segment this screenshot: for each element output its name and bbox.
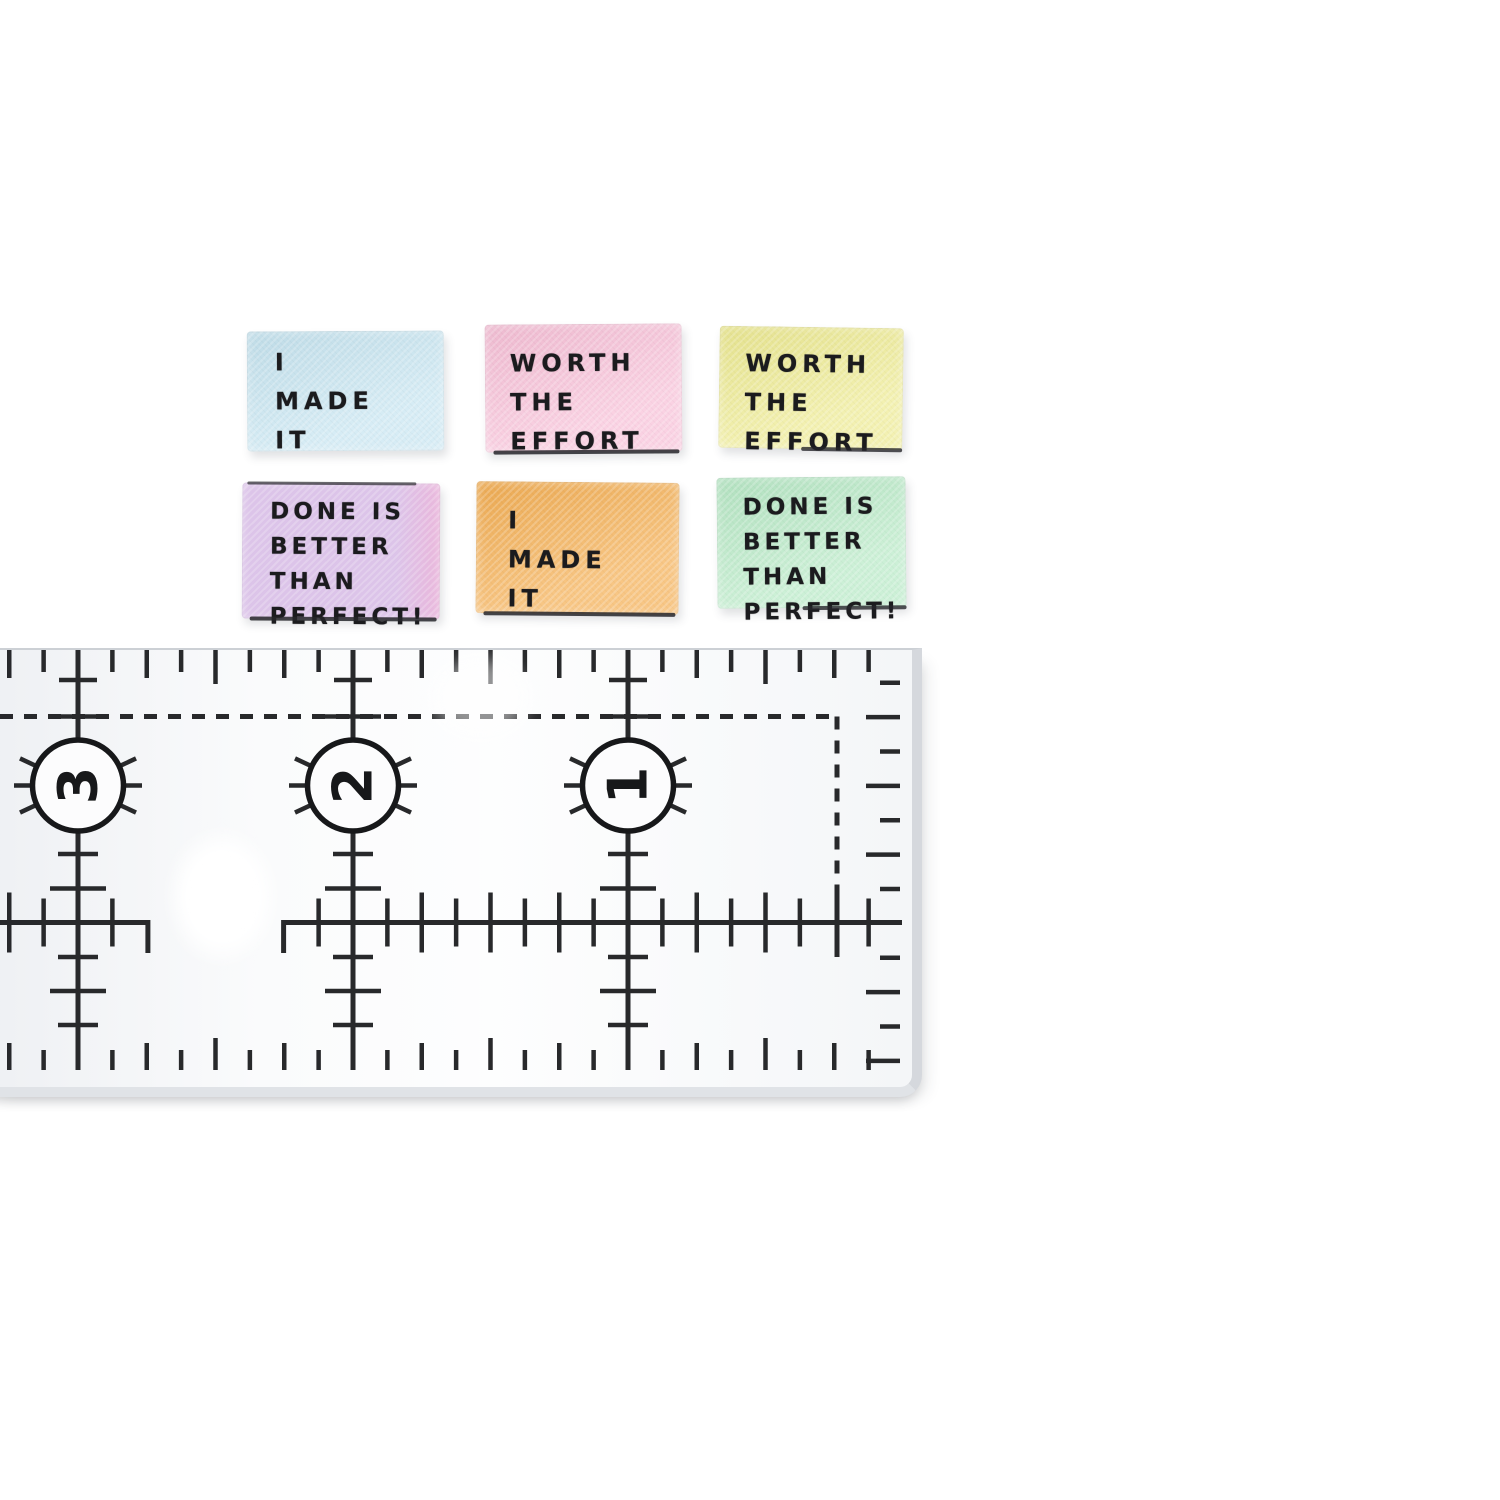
quilting-ruler	[0, 648, 922, 1097]
product-photo: I MADE IT WORTH THE EFFORT WORTH THE EFF…	[0, 0, 1500, 1500]
label-text: I MADE IT	[247, 330, 445, 460]
label-text: DONE IS BETTER THAN PERFECT!	[242, 482, 441, 635]
label-text: WORTH THE EFFORT	[485, 323, 683, 461]
label-i-made-it-blue: I MADE IT	[247, 330, 445, 451]
label-i-made-it-orange: I MADE IT	[475, 481, 679, 615]
label-done-is-better-lilac: DONE IS BETTER THAN PERFECT!	[242, 482, 441, 619]
label-text: WORTH THE EFFORT	[718, 326, 904, 464]
label-text: DONE IS BETTER THAN PERFECT!	[716, 476, 906, 631]
label-done-is-better-mint: DONE IS BETTER THAN PERFECT!	[716, 476, 906, 609]
label-worth-the-effort-pink: WORTH THE EFFORT	[485, 323, 683, 452]
label-text: I MADE IT	[475, 481, 679, 620]
label-worth-the-effort-yellow: WORTH THE EFFORT	[718, 326, 904, 451]
